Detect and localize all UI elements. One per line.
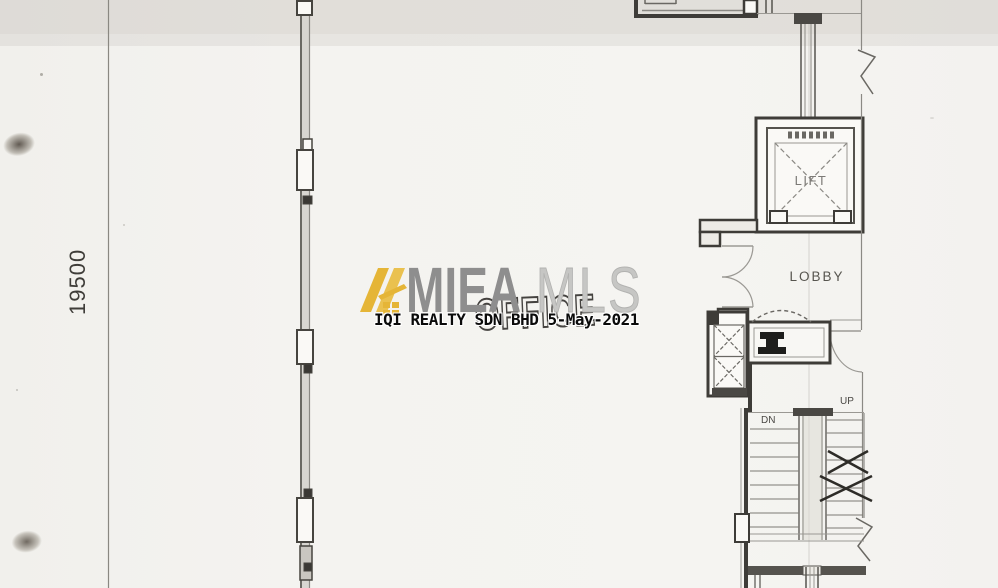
lift-label: LIFT — [786, 173, 836, 188]
top-walls — [634, 0, 861, 17]
staircase — [735, 408, 872, 588]
lobby-label: LOBBY — [784, 269, 850, 284]
bottom-walls — [748, 566, 866, 588]
miea-logo-icon — [352, 264, 410, 316]
stair-down-label: DN — [761, 415, 775, 426]
dimension-label: 19500 — [65, 255, 91, 315]
watermark-stamp-text: IQI REALTY SDN BHD 5-May-2021 — [374, 310, 639, 329]
scanned-floorplan-page: 19500 LIFT LOBBY UP DN OFFICE MIEA MLS I… — [0, 0, 998, 588]
riser-shaft — [708, 312, 747, 396]
stair-up-label: UP — [840, 396, 854, 407]
curtain-wall-left — [297, 0, 313, 588]
